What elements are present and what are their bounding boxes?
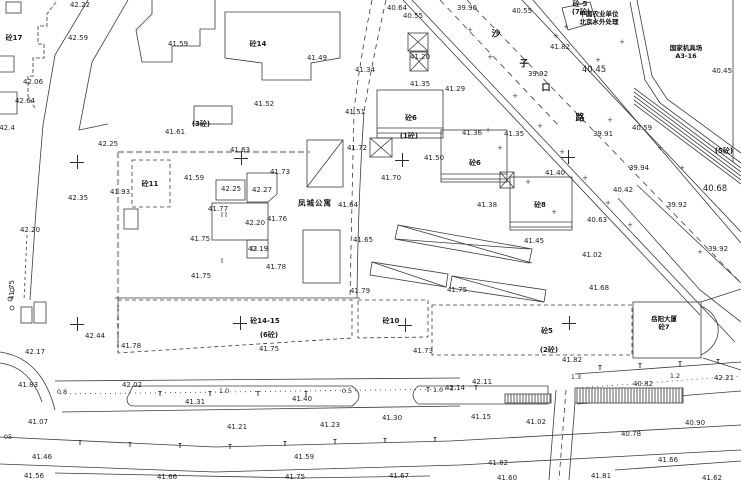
elevation-label: 42.02 [122,381,142,389]
building-label: 砼11 [142,179,159,189]
lamp-tick-icon [335,439,336,444]
elevation-label: 39.96 [457,4,477,12]
elevation-label: 40.42 [613,186,633,194]
elevation-label: 0.5 [342,387,352,395]
grid-cross-icon [562,316,576,330]
grid-cross-icon [70,155,84,169]
labels-layer: 42.22砼1742.5941.5942.0642.6442.442.2541.… [0,0,741,480]
elevation-label: 42.14 [445,384,465,392]
elevation-label: 41.78 [121,342,141,350]
tree-mark-icon: + [553,32,559,40]
lamp-tick-icon [160,391,161,396]
elevation-label: 41.67 [389,472,409,480]
tree-mark-icon: + [619,38,625,46]
tree-mark-icon: + [595,56,601,64]
elevation-label: 1.2 [670,372,680,380]
building-label: 砼17 [6,33,23,43]
lamp-tick-icon [476,385,477,390]
elevation-label: 41.23 [320,421,340,429]
elevation-label: 1.3 [571,373,581,381]
elevation-label: 41.61 [165,128,185,136]
elevation-label: 41.49 [307,54,327,62]
building-label: 砼8 [534,200,546,210]
lamp-tick-icon [230,444,231,449]
elevation-label: 41.70 [381,174,401,182]
elevation-label: 41.72 [347,144,367,152]
tree-mark-icon: + [512,92,518,100]
grid-cross-icon [70,317,84,331]
elevation-label: 41.52 [254,100,274,108]
tree-mark-icon: + [525,178,531,186]
elevation-label: 40.45 [712,67,732,75]
elevation-label: 41.79 [350,287,370,295]
elevation-label: 41.64 [338,201,358,209]
grid-cross-icon [398,318,412,332]
elevation-label: 40.68 [703,184,727,194]
building-label: (6砼) [260,330,278,340]
elevation-label: 41.62 [702,474,722,480]
lamp-tick-icon [180,443,181,448]
tree-mark-icon: + [467,26,473,34]
building-label: (1砼) [400,131,418,141]
elevation-label: 42.35 [68,194,88,202]
road-name-char: 子 [519,57,528,70]
elevation-label: 42.4 [0,124,15,132]
elevation-label: 41.83 [18,381,38,389]
road-name-char: 口 [541,81,550,94]
agri-line-2: 北京水外处理 [580,18,619,26]
elevation-label: 41.21 [227,423,247,431]
elevation-label: 41.65 [353,236,373,244]
elevation-label: 39.92 [667,201,687,209]
yueyang-line-2: 砼7 [658,323,669,331]
elevation-label: 41.51 [345,108,365,116]
elevation-label: 41.75 [190,235,210,243]
elevation-label: 42.27 [252,186,272,194]
elevation-label: 41.75 [447,286,467,294]
elevation-label: 42.44 [85,332,105,340]
survey-map: 42.22砼1742.5941.5942.0642.6442.442.2541.… [0,0,741,480]
elevation-label: 40.63 [587,216,607,224]
elevation-label: 41.82 [488,459,508,467]
tree-mark-icon: + [551,208,557,216]
elevation-label: 41.46 [32,453,52,461]
elevation-label: 41.75 [259,345,279,353]
lamp-tick-icon [600,365,601,370]
building-label: (5砼) [715,146,733,156]
yueyang-building-label: 岳阳大厦 砼7 [651,315,677,331]
tree-mark-icon: + [497,144,503,152]
elevation-label: 42.20 [245,219,265,227]
tree-mark-icon: + [657,144,663,152]
elevation-label: 40.55 [403,12,423,20]
elevation-label: 40.64 [387,4,407,12]
elevation-label: 42.25 [98,140,118,148]
road-name-char: 路 [575,111,584,124]
elevation-label: 41.77 [208,205,228,213]
lamp-tick-icon [680,361,681,366]
elevation-label: 41.82 [550,43,570,51]
elevation-label: 41.02 [582,251,602,259]
elevation-label: 42.06 [23,78,43,86]
lamp-tick-icon [435,437,436,442]
building-label: 砼10 [383,316,400,326]
fengcheng-estate-label: 凤城公寓 [298,198,332,207]
elevation-label: 41.78 [266,263,286,271]
elevation-label: 41.35 [504,130,524,138]
tree-mark-icon: + [537,122,543,130]
elevation-label: 41.82 [562,356,582,364]
elevation-label: 39.91 [593,130,613,138]
tree-mark-icon: + [487,53,493,61]
elevation-label: 42.22 [70,1,90,9]
elevation-label: 42.20 [20,226,40,234]
elevation-label: 41.34 [355,66,375,74]
tree-mark-icon: + [605,199,611,207]
elevation-label: 40.78 [621,430,641,438]
elevation-label: 39.92 [528,70,548,78]
elevation-label: 41.45 [524,237,544,245]
agri-line-1: 中国农业单位 [580,10,619,18]
elevation-label: 39.92 [708,245,728,253]
elevation-label: 41.66 [157,473,177,480]
elevation-label: 40.90 [685,419,705,427]
grid-cross-icon [395,153,409,167]
elevation-label: 42.59 [68,34,88,42]
elevation-label: 41.20 [410,53,430,61]
lamp-tick-icon [258,391,259,396]
elevation-label: 41.76 [267,215,287,223]
lamp-tick-icon [718,359,719,364]
elevation-label: 41.93 [110,188,130,196]
elevation-label: 41.75 [191,272,211,280]
elevation-label: 41.31 [185,398,205,406]
elevation-label: 41.35 [410,80,430,88]
elevation-label: 41.60 [497,474,517,480]
lamp-tick-icon [428,387,429,392]
elevation-label: 05 [4,433,12,441]
elevation-label: 40.55 [512,7,532,15]
elevation-label: 39.94 [629,164,649,172]
elevation-label: 41.59 [294,453,314,461]
elevation-label: 40.59 [632,124,652,132]
lamp-tick-icon [130,442,131,447]
elevation-label: 41.56 [24,472,44,480]
elevation-label: 41.73 [270,168,290,176]
elevation-label: 41.36 [462,129,482,137]
building-label: (3砼) [192,119,210,129]
lamp-tick-icon [306,391,307,396]
elevation-label: 41.40 [292,395,312,403]
tree-mark-icon: + [627,221,633,229]
building-label: 砼14 [250,39,267,49]
elevation-label: 1.0 [433,386,443,394]
elevation-label: 41.75 [8,280,16,300]
elevation-label: 41.38 [477,201,497,209]
lamp-tick-icon [80,440,81,445]
elevation-label: 41.02 [526,418,546,426]
elevation-label: 42.19 [248,245,268,253]
elevation-label: 42.17 [25,348,45,356]
elevation-label: 42.25 [221,185,241,193]
building-label: 砼5 [541,326,553,336]
elevation-label: 41.73 [413,347,433,355]
depot-label: 国家机具场 A3-16 [670,44,703,60]
elevation-label: 41.50 [424,154,444,162]
building-label: 砼14-15 [250,316,279,326]
tree-mark-icon: + [697,248,703,256]
elevation-label: 1.0 [219,387,229,395]
elevation-label: 40.45 [582,65,606,75]
road-name-char: 沙 [491,27,500,40]
elevation-label: 42.64 [15,97,35,105]
lamp-tick-icon [640,363,641,368]
lamp-tick-icon [210,391,211,396]
elevation-label: 41.59 [168,40,188,48]
elevation-label: 41.07 [28,418,48,426]
elevation-label: 41.40 [545,169,565,177]
agri-org-label: 中国农业单位 北京水外处理 [580,10,619,26]
building-label: (2砼) [540,345,558,355]
depot-line-2: A3-16 [675,52,696,60]
tree-mark-icon: + [485,126,491,134]
elevation-label: 40.82 [633,380,653,388]
grid-cross-icon [234,151,248,165]
depot-line-1: 国家机具场 [670,44,703,52]
lamp-tick-icon [285,441,286,446]
tree-mark-icon: + [559,148,565,156]
tree-mark-icon: + [563,23,569,31]
elevation-label: 41.15 [471,413,491,421]
elevation-label: 41.29 [445,85,465,93]
yueyang-line-1: 岳阳大厦 [651,315,677,323]
elevation-label: 41.75 [285,473,305,480]
tree-mark-icon: + [582,174,588,182]
elevation-label: 41.68 [589,284,609,292]
elevation-label: 41.30 [382,414,402,422]
building-label: 砼6 [405,113,417,123]
lamp-tick-icon [452,386,453,391]
elevation-label: 41.59 [184,174,204,182]
lamp-tick-icon [385,438,386,443]
elevation-label: 42.21 [714,374,734,382]
tree-mark-icon: + [679,164,685,172]
elevation-label: 0.8 [57,388,67,396]
elevation-label: 41.81 [591,472,611,480]
grid-cross-icon [233,316,247,330]
elevation-label: 41.66 [658,456,678,464]
tree-mark-icon: + [607,116,613,124]
building-label: 砼6 [469,158,481,168]
